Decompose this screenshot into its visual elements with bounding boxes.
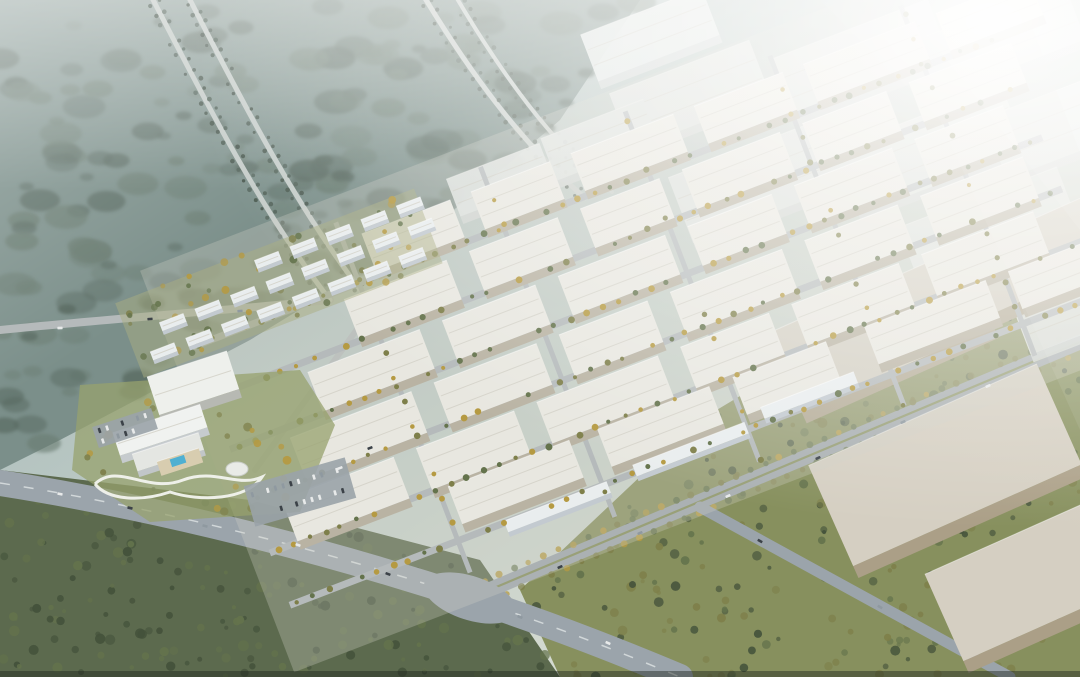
scene-canvas <box>0 0 1080 677</box>
bottom-edge-strip <box>0 671 1080 677</box>
aerial-rendering <box>0 0 1080 677</box>
top-haze <box>0 0 1080 380</box>
